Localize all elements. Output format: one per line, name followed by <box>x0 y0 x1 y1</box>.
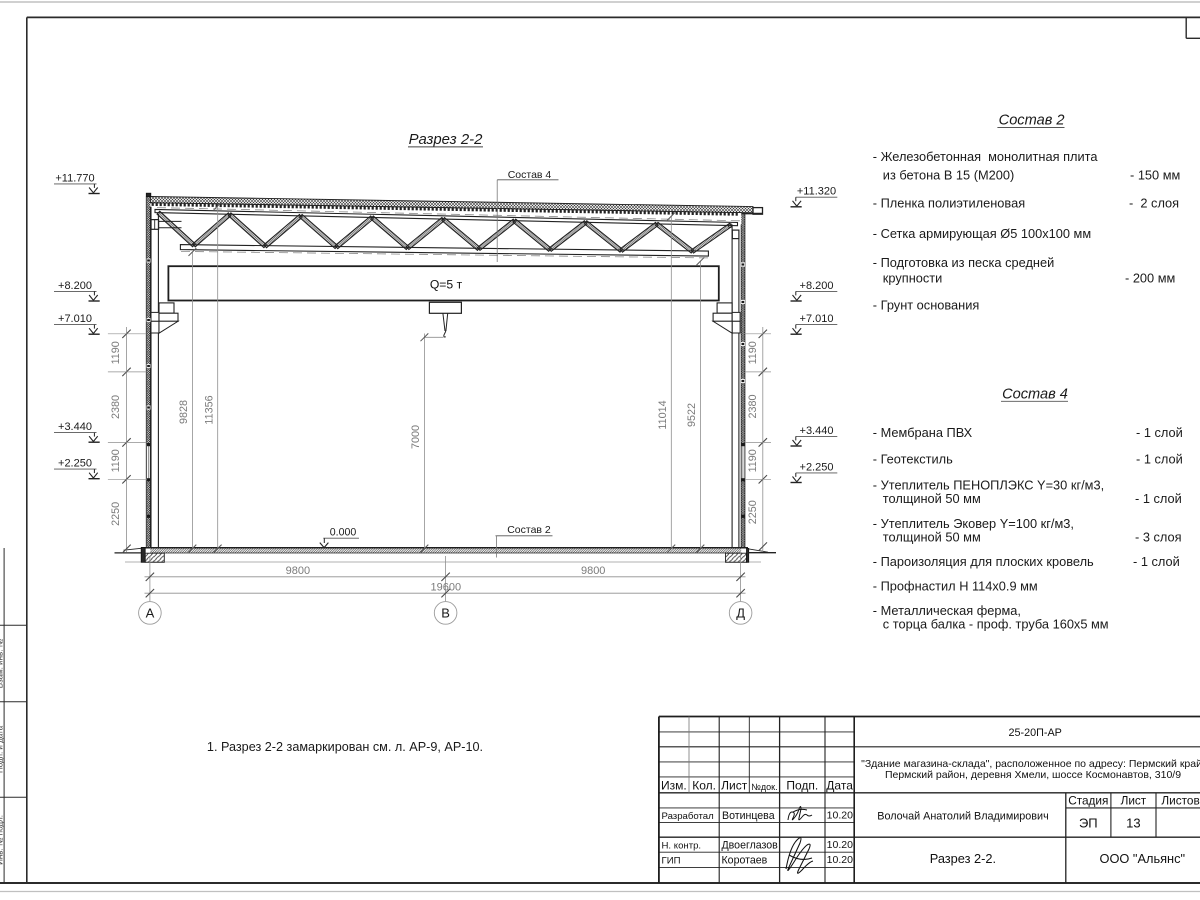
svg-text:крупности: крупности <box>883 271 943 286</box>
svg-text:толщиной 50 мм: толщиной 50 мм <box>883 530 981 545</box>
svg-text:- Пленка полиэтиленовая: - Пленка полиэтиленовая <box>873 196 1025 211</box>
svg-text:- 1 слой: - 1 слой <box>1135 491 1182 506</box>
svg-text:2380: 2380 <box>110 395 122 419</box>
svg-text:Коротаев: Коротаев <box>722 854 768 866</box>
svg-text:Состав 4: Состав 4 <box>508 169 552 181</box>
svg-text:Двоеглазов: Двоеглазов <box>722 840 779 852</box>
svg-text:- Пароизоляция для плоских кро: - Пароизоляция для плоских кровель <box>873 554 1094 569</box>
svg-text:1190: 1190 <box>747 449 759 472</box>
svg-text:9800: 9800 <box>286 565 310 577</box>
svg-text:- 200 мм: - 200 мм <box>1125 271 1175 286</box>
svg-text:ЭП: ЭП <box>1079 816 1098 831</box>
svg-text:1. Разрез 2-2 замаркирован см.: 1. Разрез 2-2 замаркирован см. л. АР-9, … <box>207 740 483 754</box>
svg-text:- 3 слоя: - 3 слоя <box>1135 530 1182 545</box>
svg-text:- 2 слоя: - 2 слоя <box>1129 196 1179 211</box>
svg-text:9828: 9828 <box>178 400 190 424</box>
svg-text:1190: 1190 <box>747 341 759 364</box>
svg-text:- 150 мм: - 150 мм <box>1130 167 1180 182</box>
svg-text:Взам. инв. №: Взам. инв. № <box>0 638 5 688</box>
svg-text:Листов: Листов <box>1161 794 1199 808</box>
svg-text:13: 13 <box>1126 816 1140 831</box>
svg-text:+11.320: +11.320 <box>797 186 836 198</box>
svg-text:- Мембрана ПВХ: - Мембрана ПВХ <box>873 425 973 440</box>
svg-text:11014: 11014 <box>657 400 669 429</box>
svg-text:- 1 слой: - 1 слой <box>1136 425 1183 440</box>
svg-text:Состав 4: Состав 4 <box>1002 387 1068 403</box>
svg-text:Лист: Лист <box>1121 794 1147 808</box>
svg-text:- Подготовка из песка средней: - Подготовка из песка средней <box>873 255 1054 270</box>
svg-text:А: А <box>146 605 155 620</box>
svg-text:+7.010: +7.010 <box>800 313 834 325</box>
svg-text:Д: Д <box>736 605 745 620</box>
svg-text:+7.010: +7.010 <box>58 313 92 325</box>
svg-text:толщиной 50 мм: толщиной 50 мм <box>883 491 981 506</box>
svg-text:+8.200: +8.200 <box>58 280 92 292</box>
svg-text:+3.440: +3.440 <box>58 421 92 433</box>
svg-text:- Железобетонная монолитная п: - Железобетонная монолитная плита <box>873 149 1099 164</box>
svg-text:Н. контр.: Н. контр. <box>662 841 702 852</box>
svg-text:+3.440: +3.440 <box>800 425 834 437</box>
svg-text:Q=5 т: Q=5 т <box>430 277 463 291</box>
svg-text:- 1 слой: - 1 слой <box>1136 452 1183 467</box>
svg-text:ГИП: ГИП <box>662 855 681 866</box>
svg-text:+11.770: +11.770 <box>55 172 94 184</box>
svg-text:2250: 2250 <box>747 500 759 524</box>
svg-text:- 1 слой: - 1 слой <box>1133 554 1180 569</box>
svg-text:Дата: Дата <box>826 778 853 792</box>
svg-text:+8.200: +8.200 <box>800 280 834 292</box>
svg-text:Изм.: Изм. <box>661 778 687 792</box>
svg-text:Подп. и дата: Подп. и дата <box>0 725 5 773</box>
svg-text:25-20П-АР: 25-20П-АР <box>1009 727 1062 739</box>
svg-text:9800: 9800 <box>581 565 605 577</box>
svg-text:В: В <box>441 605 450 620</box>
svg-text:10.20: 10.20 <box>827 854 853 866</box>
svg-text:11356: 11356 <box>204 395 216 424</box>
svg-text:- Геотекстиль: - Геотекстиль <box>873 452 953 467</box>
svg-text:Инв. № подл.: Инв. № подл. <box>0 815 5 865</box>
svg-text:10.20: 10.20 <box>827 839 853 851</box>
svg-text:Лист: Лист <box>721 778 748 792</box>
svg-text:№док.: №док. <box>751 782 777 792</box>
svg-text:1190: 1190 <box>110 341 122 364</box>
svg-text:10.20: 10.20 <box>827 809 853 821</box>
svg-text:Состав 2: Состав 2 <box>999 113 1065 129</box>
svg-text:Вотинцева: Вотинцева <box>722 810 775 822</box>
svg-text:Пермский район, деревня Хмели,: Пермский район, деревня Хмели, шоссе Кос… <box>885 769 1181 781</box>
svg-text:Кол.: Кол. <box>692 778 716 792</box>
svg-text:19600: 19600 <box>431 581 462 593</box>
svg-text:Стадия: Стадия <box>1068 794 1108 808</box>
svg-text:7000: 7000 <box>410 425 422 449</box>
svg-text:0.000: 0.000 <box>330 527 357 539</box>
svg-text:Разработал: Разработал <box>662 811 714 822</box>
svg-text:Подп.: Подп. <box>786 778 818 792</box>
svg-text:+2.250: +2.250 <box>58 458 92 470</box>
svg-text:1190: 1190 <box>110 449 122 472</box>
svg-text:Разрез 2-2: Разрез 2-2 <box>409 132 484 148</box>
svg-text:2250: 2250 <box>110 502 122 526</box>
svg-text:Разрез 2-2.: Разрез 2-2. <box>930 851 996 866</box>
svg-text:Состав 2: Состав 2 <box>507 524 551 536</box>
svg-text:с торца балка - проф. труба 16: с торца балка - проф. труба 160х5 мм <box>883 617 1109 632</box>
svg-text:9522: 9522 <box>686 403 698 427</box>
svg-text:Волочай Анатолий Владимирович: Волочай Анатолий Владимирович <box>877 811 1048 823</box>
svg-text:- Грунт основания: - Грунт основания <box>873 298 980 313</box>
svg-text:- Сетка армирующая Ø5 100х100: - Сетка армирующая Ø5 100х100 мм <box>873 226 1091 241</box>
svg-text:- Профнастил Н 114х0.9 мм: - Профнастил Н 114х0.9 мм <box>873 579 1038 594</box>
svg-text:ООО "Альянс": ООО "Альянс" <box>1100 851 1186 866</box>
svg-text:+2.250: +2.250 <box>800 461 834 473</box>
svg-text:2380: 2380 <box>747 394 759 418</box>
svg-text:из бетона В 15 (М200): из бетона В 15 (М200) <box>883 167 1014 182</box>
